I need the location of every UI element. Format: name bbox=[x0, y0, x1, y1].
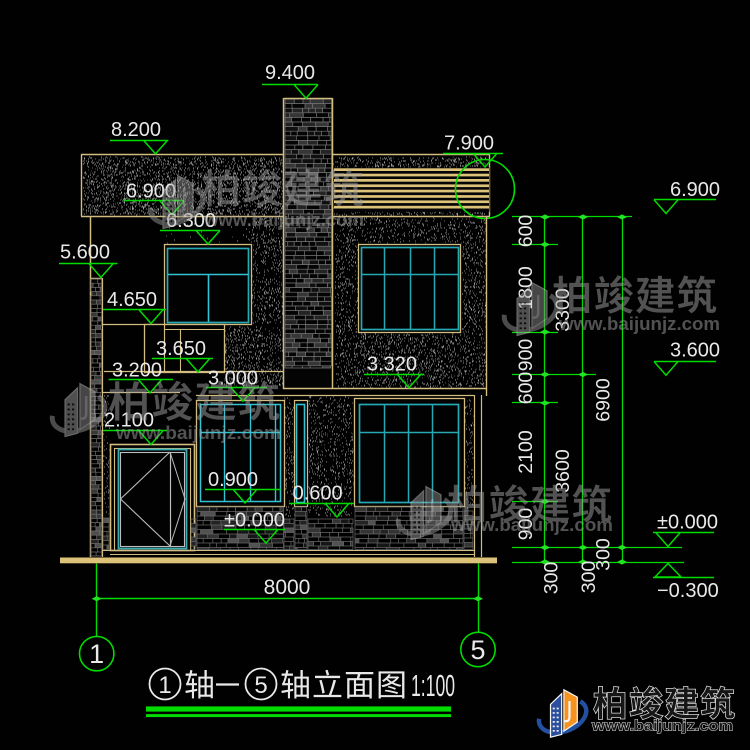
svg-text:±0.000: ±0.000 bbox=[224, 510, 285, 532]
svg-text:900: 900 bbox=[515, 339, 537, 372]
svg-text:9.400: 9.400 bbox=[265, 62, 315, 84]
svg-text:7.900: 7.900 bbox=[444, 133, 494, 155]
svg-text:1: 1 bbox=[89, 639, 104, 669]
svg-text:5.600: 5.600 bbox=[60, 242, 110, 264]
svg-text:www.baijunjz.com: www.baijunjz.com bbox=[450, 514, 613, 535]
svg-text:www.baijunjz.com: www.baijunjz.com bbox=[558, 313, 720, 334]
svg-text:4.650: 4.650 bbox=[107, 289, 157, 311]
svg-text:600: 600 bbox=[515, 372, 537, 405]
svg-text:1: 1 bbox=[158, 672, 171, 699]
svg-text:0.900: 0.900 bbox=[208, 469, 258, 491]
svg-text:3.200: 3.200 bbox=[112, 359, 162, 381]
svg-text:3.650: 3.650 bbox=[156, 338, 206, 360]
svg-text:8000: 8000 bbox=[264, 576, 311, 599]
svg-text:0.600: 0.600 bbox=[293, 483, 343, 505]
svg-text:3.600: 3.600 bbox=[670, 340, 720, 362]
svg-text:www.baijunjz.com: www.baijunjz.com bbox=[115, 422, 281, 443]
svg-text:www.baijunjz.com: www.baijunjz.com bbox=[203, 209, 364, 230]
svg-text:300: 300 bbox=[593, 538, 615, 571]
svg-text:3.320: 3.320 bbox=[367, 354, 417, 376]
svg-text:±0.000: ±0.000 bbox=[657, 512, 718, 534]
svg-text:6.900: 6.900 bbox=[670, 179, 720, 201]
svg-text:1:100: 1:100 bbox=[411, 668, 455, 703]
svg-text:−0.300: −0.300 bbox=[657, 580, 719, 602]
svg-text:6900: 6900 bbox=[593, 378, 615, 422]
svg-text:8.200: 8.200 bbox=[111, 119, 161, 141]
svg-text:www.baijunjz.com: www.baijunjz.com bbox=[591, 719, 733, 735]
svg-text:5: 5 bbox=[470, 635, 485, 665]
svg-text:2100: 2100 bbox=[515, 430, 537, 474]
svg-text:600: 600 bbox=[515, 215, 537, 248]
svg-text:300: 300 bbox=[541, 562, 563, 595]
svg-text:5: 5 bbox=[254, 672, 267, 699]
